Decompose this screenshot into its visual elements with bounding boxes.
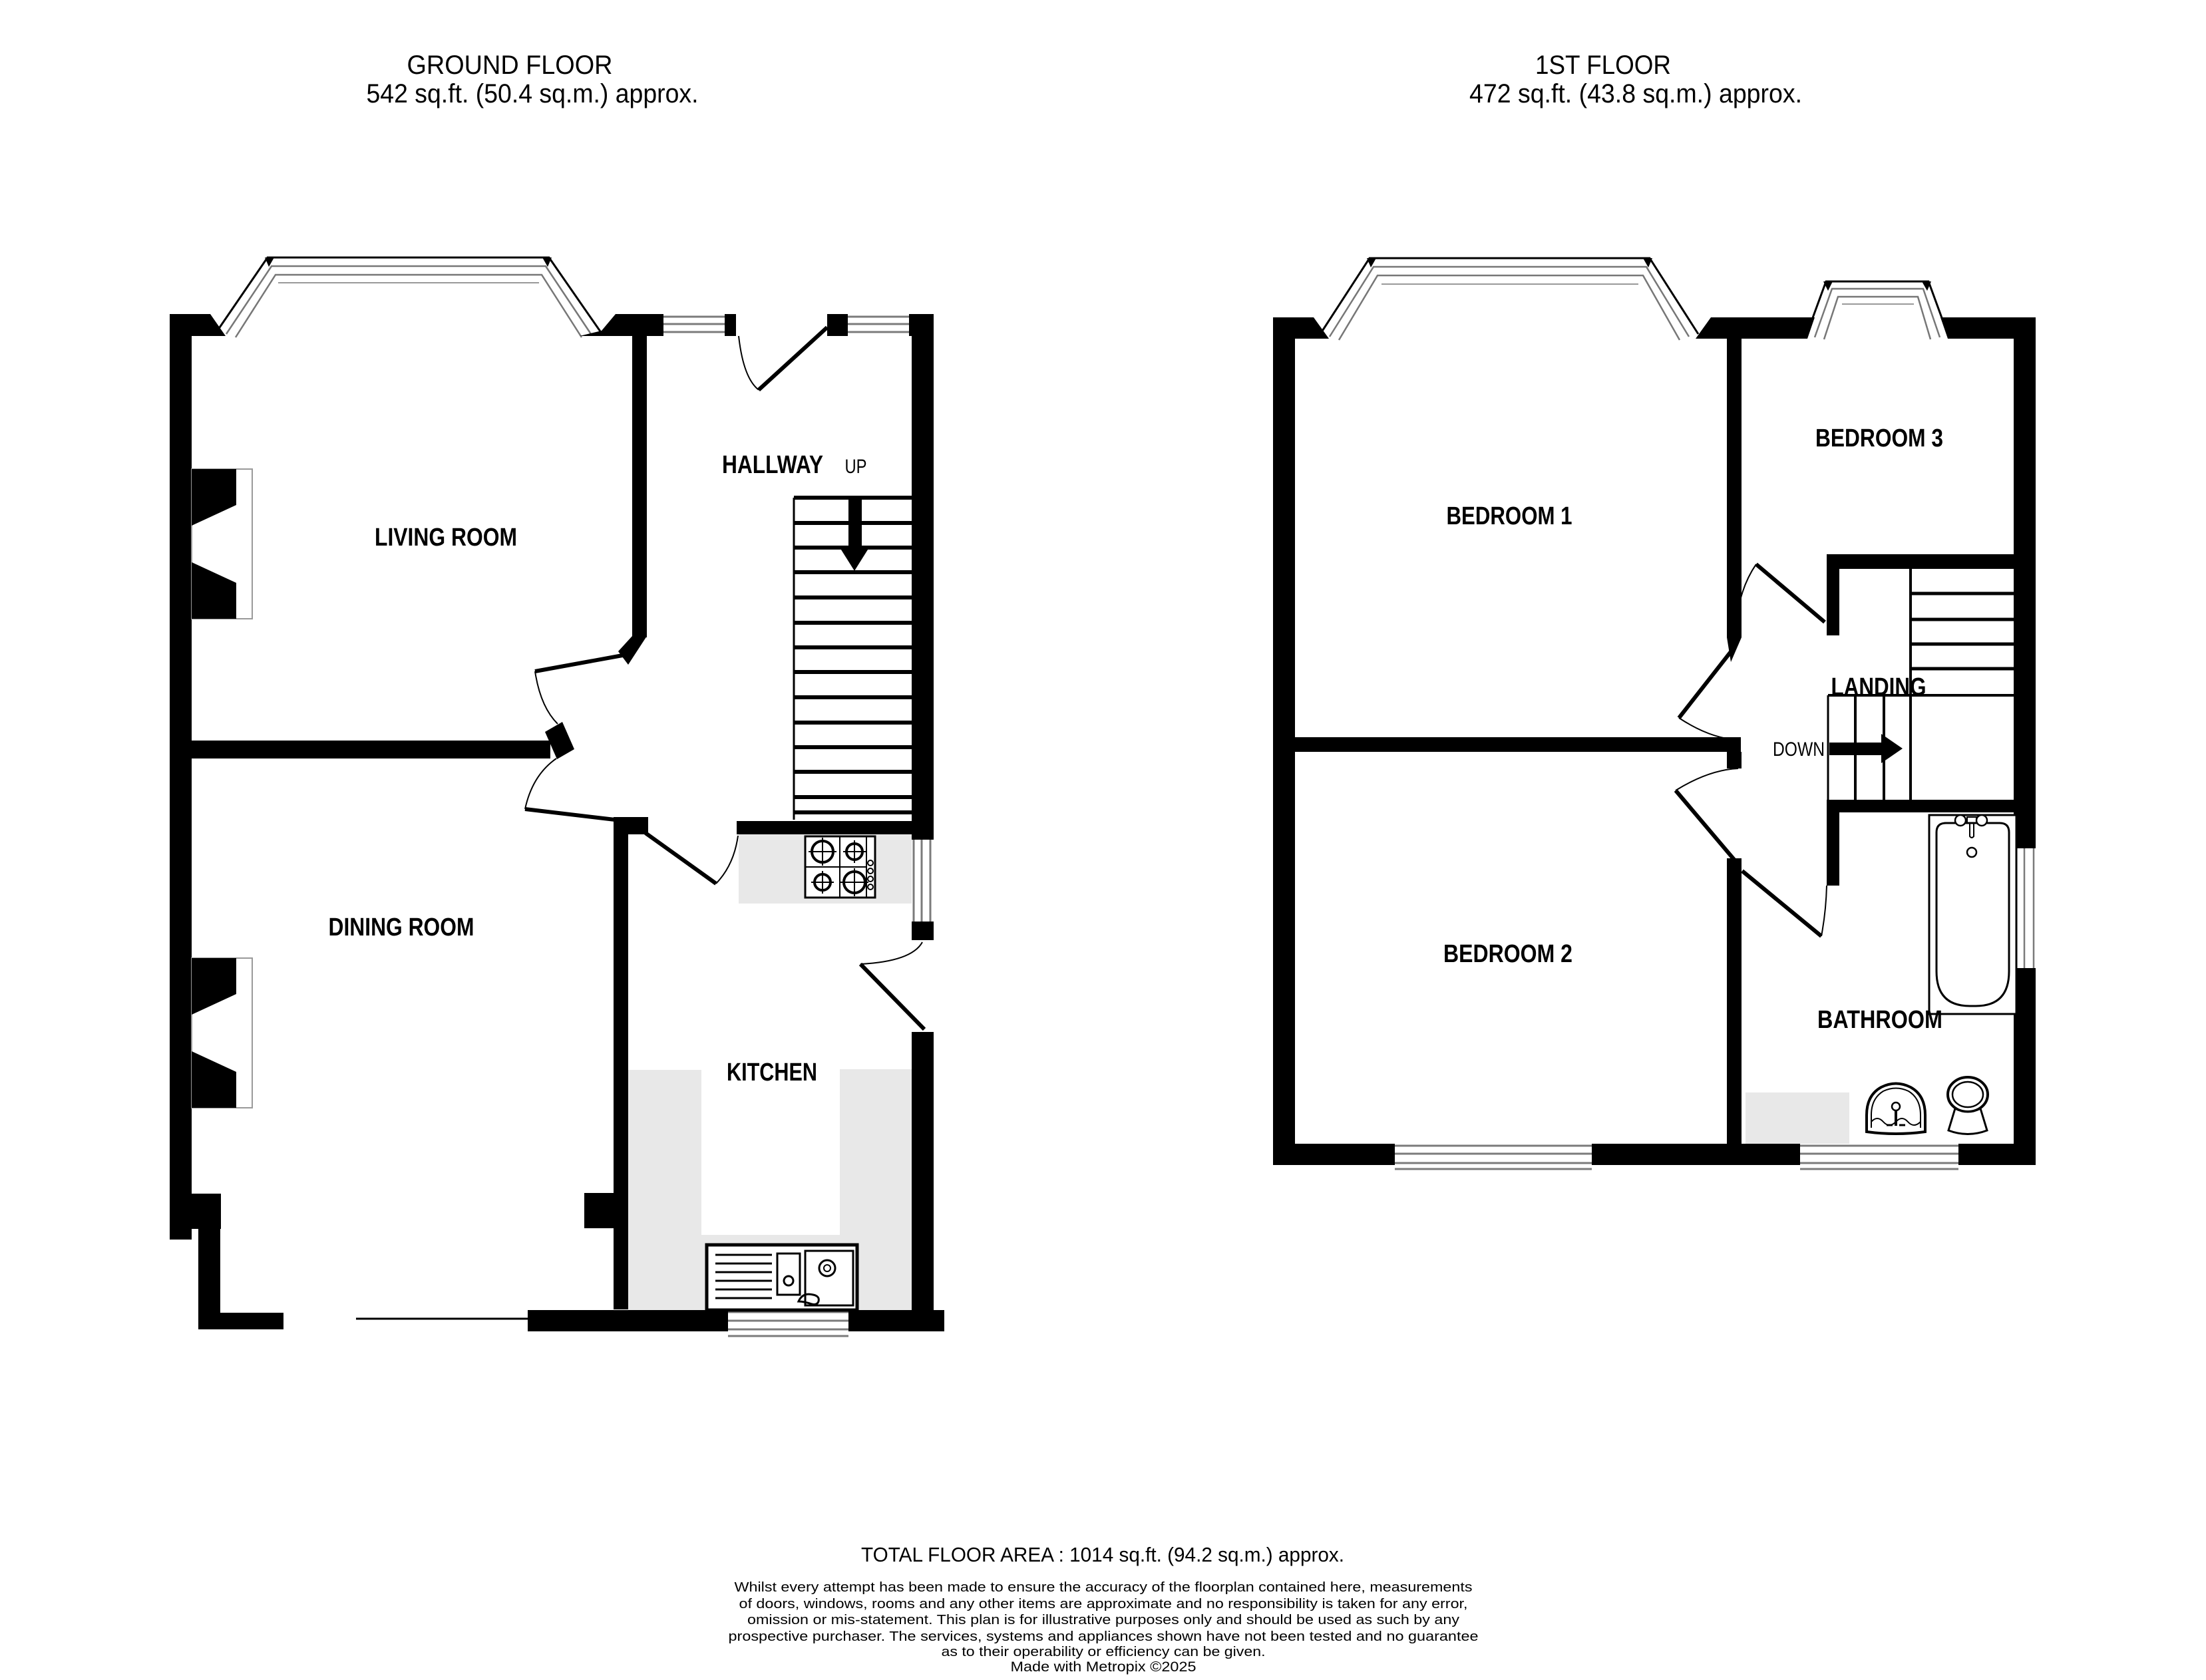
svg-text:UP: UP — [845, 456, 867, 478]
svg-text:DOWN: DOWN — [1773, 739, 1825, 760]
svg-text:LANDING: LANDING — [1831, 673, 1927, 701]
svg-text:Whilst every attempt has been: Whilst every attempt has been made to en… — [735, 1580, 1473, 1595]
svg-text:GROUND FLOOR: GROUND FLOOR — [407, 51, 613, 80]
svg-text:TOTAL FLOOR AREA : 1014 sq.ft.: TOTAL FLOOR AREA : 1014 sq.ft. (94.2 sq.… — [861, 1543, 1344, 1566]
svg-text:of doors, windows, rooms and a: of doors, windows, rooms and any other i… — [739, 1597, 1468, 1611]
svg-text:BATHROOM: BATHROOM — [1817, 1006, 1942, 1034]
svg-text:Made with Metropix ©2025: Made with Metropix ©2025 — [1011, 1659, 1196, 1675]
svg-text:BEDROOM 3: BEDROOM 3 — [1815, 424, 1943, 452]
svg-text:prospective purchaser. The ser: prospective purchaser. The services, sys… — [729, 1629, 1479, 1644]
svg-text:BEDROOM 2: BEDROOM 2 — [1443, 940, 1572, 968]
svg-text:542 sq.ft. (50.4 sq.m.) approx: 542 sq.ft. (50.4 sq.m.) approx. — [367, 79, 699, 108]
svg-text:1ST FLOOR: 1ST FLOOR — [1535, 51, 1671, 80]
svg-text:BEDROOM 1: BEDROOM 1 — [1447, 502, 1572, 530]
svg-text:as to their operability or eff: as to their operability or efficiency ca… — [942, 1645, 1266, 1659]
svg-text:LIVING ROOM: LIVING ROOM — [375, 524, 517, 552]
svg-text:KITCHEN: KITCHEN — [727, 1059, 817, 1087]
svg-text:DINING ROOM: DINING ROOM — [329, 914, 474, 941]
svg-text:omission or mis-statement. Thi: omission or mis-statement. This plan is … — [747, 1613, 1459, 1627]
svg-text:HALLWAY: HALLWAY — [722, 451, 823, 479]
svg-text:472 sq.ft. (43.8 sq.m.) approx: 472 sq.ft. (43.8 sq.m.) approx. — [1469, 79, 1802, 108]
